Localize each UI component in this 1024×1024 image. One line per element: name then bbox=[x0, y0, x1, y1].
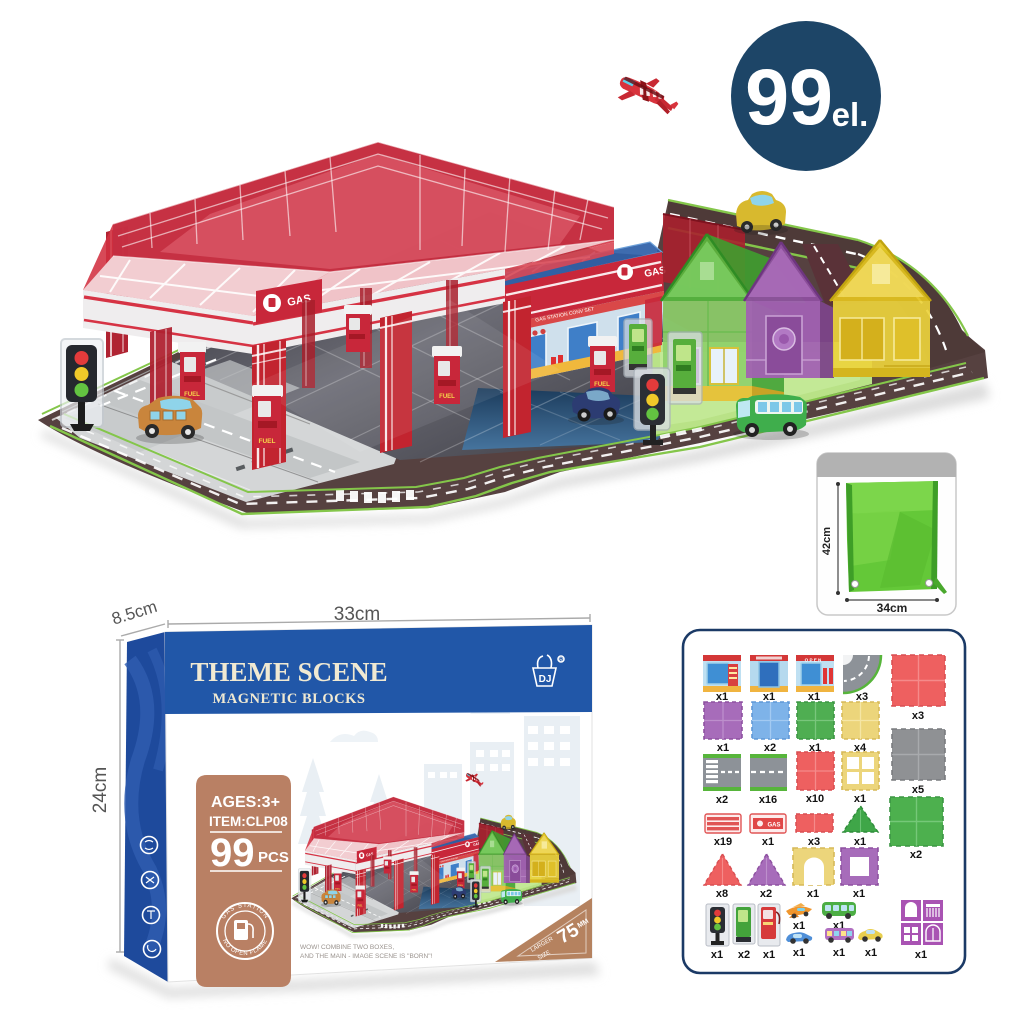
svg-text:99: 99 bbox=[745, 52, 833, 141]
svg-text:x1: x1 bbox=[763, 949, 775, 961]
svg-text:FUEL: FUEL bbox=[259, 438, 276, 445]
svg-text:x2: x2 bbox=[716, 794, 728, 806]
svg-text:MAGNETIC BLOCKS: MAGNETIC BLOCKS bbox=[213, 691, 366, 707]
svg-text:FUEL: FUEL bbox=[184, 392, 200, 398]
svg-text:33cm: 33cm bbox=[334, 604, 380, 625]
svg-text:FUEL: FUEL bbox=[439, 394, 455, 400]
svg-text:x2: x2 bbox=[764, 742, 776, 754]
svg-text:x1: x1 bbox=[793, 947, 805, 959]
svg-text:el.: el. bbox=[832, 96, 869, 133]
svg-text:x1: x1 bbox=[865, 947, 877, 959]
svg-text:WOW! COMBINE TWO BOXES,: WOW! COMBINE TWO BOXES, bbox=[300, 944, 394, 951]
svg-text:x10: x10 bbox=[806, 793, 824, 805]
svg-text:FUEL: FUEL bbox=[594, 382, 610, 388]
svg-text:x1: x1 bbox=[833, 947, 845, 959]
svg-text:ITEM:CLP08: ITEM:CLP08 bbox=[209, 814, 288, 829]
svg-text:GAS: GAS bbox=[767, 823, 780, 829]
svg-text:x1: x1 bbox=[793, 920, 805, 932]
svg-text:24cm: 24cm bbox=[90, 767, 111, 813]
svg-text:x1: x1 bbox=[854, 836, 866, 848]
svg-text:34cm: 34cm bbox=[877, 601, 908, 615]
svg-text:x2: x2 bbox=[738, 949, 750, 961]
svg-text:x3: x3 bbox=[808, 836, 820, 848]
svg-text:THEME SCENE: THEME SCENE bbox=[190, 657, 387, 687]
svg-text:x1: x1 bbox=[717, 742, 729, 754]
svg-text:x1: x1 bbox=[915, 949, 927, 961]
svg-text:AGES:3+: AGES:3+ bbox=[211, 794, 280, 811]
svg-text:x1: x1 bbox=[807, 888, 819, 900]
svg-text:x1: x1 bbox=[711, 949, 723, 961]
svg-text:x2: x2 bbox=[760, 888, 772, 900]
svg-text:x1: x1 bbox=[762, 836, 774, 848]
svg-text:O P E N: O P E N bbox=[805, 658, 822, 663]
svg-text:42cm: 42cm bbox=[821, 527, 833, 555]
svg-text:x1: x1 bbox=[854, 793, 866, 805]
svg-text:x19: x19 bbox=[714, 836, 732, 848]
svg-text:x2: x2 bbox=[910, 849, 922, 861]
svg-text:DJ: DJ bbox=[539, 674, 552, 685]
svg-text:x3: x3 bbox=[912, 710, 924, 722]
svg-text:x1: x1 bbox=[853, 888, 865, 900]
svg-text:99: 99 bbox=[210, 831, 255, 875]
svg-text:x5: x5 bbox=[912, 784, 924, 796]
svg-text:AND THE MAIN - IMAGE SCENE IS: AND THE MAIN - IMAGE SCENE IS "BORN"! bbox=[300, 953, 433, 960]
svg-text:x8: x8 bbox=[716, 888, 728, 900]
svg-text:PCS: PCS bbox=[258, 849, 289, 866]
svg-text:x16: x16 bbox=[759, 794, 777, 806]
svg-text:R: R bbox=[559, 658, 563, 664]
